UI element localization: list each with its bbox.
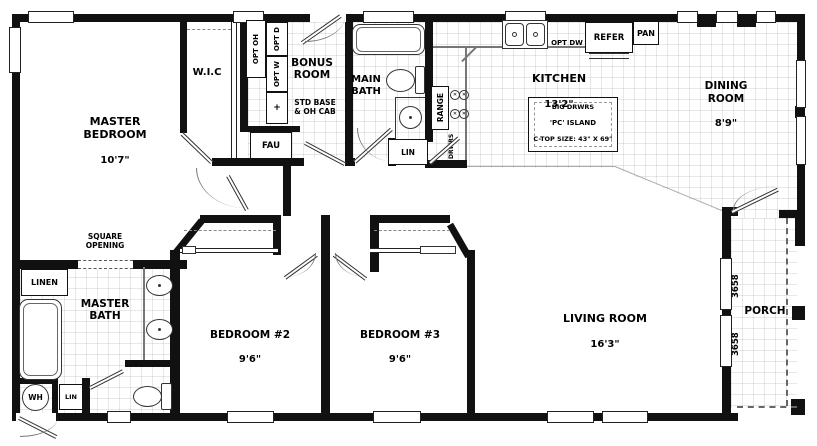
- label-living-room: LIVING ROOM 16'3": [550, 300, 660, 364]
- refrigerator-base: [589, 53, 629, 59]
- masterbath-sink-2-drain: [158, 328, 161, 331]
- bed3-door-arc: [335, 253, 366, 277]
- bed3-closet-door-panel: [420, 246, 456, 254]
- label-porch: PORCH: [740, 305, 790, 317]
- masterbath-tub-inner: [23, 303, 58, 376]
- bedroom-2-dim: 9'6": [200, 354, 300, 366]
- label-square-opening: SQUARE OPENING: [74, 233, 136, 251]
- opt-d-label: OPT D: [273, 27, 281, 51]
- window-dining-right-2: [796, 116, 806, 165]
- floor-plan: RANGE ✕ ✕ ✕ ✕ DRWRS OPT DW REFER PAN BIG…: [0, 0, 817, 446]
- window-dining-2: [716, 11, 738, 23]
- bed3-shelf-line: [374, 230, 450, 231]
- label-wic: W.I.C: [184, 67, 230, 79]
- base-cross-mark: +: [273, 103, 281, 113]
- wh-label: WH: [28, 393, 43, 402]
- bed2-door-arc: [285, 253, 316, 277]
- wall-living-left: [467, 250, 475, 415]
- label-dining-room: DINING ROOM 8'9": [693, 68, 759, 142]
- masterbath-toilet-tank: [161, 383, 172, 410]
- dining-window-post-1: [697, 16, 716, 27]
- label-kitchen: KITCHEN 13'2": [515, 60, 603, 124]
- opt-oh-label: OPT OH: [252, 34, 260, 64]
- label-master-bath: MASTER BATH: [72, 298, 138, 323]
- lin-hall-label: LIN: [401, 148, 415, 157]
- linen-closet: LINEN: [21, 269, 68, 296]
- burner-icon-4: ✕: [459, 109, 469, 119]
- wall-masterbath-top-left: [12, 260, 78, 269]
- bed2-closet-door-panel: [182, 246, 196, 254]
- porch-post-top: [795, 218, 805, 246]
- wall-lin-utility-right: [82, 378, 90, 415]
- window-master-bedroom-left: [9, 27, 21, 73]
- window-dining-3: [756, 11, 776, 23]
- window-dining-right-1: [796, 60, 806, 108]
- wall-bed-divider: [321, 215, 330, 415]
- masterbath-counter-line: [143, 267, 145, 360]
- master-bedroom-name: MASTER BEDROOM: [55, 116, 175, 142]
- bedroom-2-name: BEDROOM #2: [200, 329, 300, 341]
- label-bedroom-2: BEDROOM #2 9'6": [200, 317, 300, 378]
- window-living-bottom-1: [547, 411, 594, 423]
- wic-shelf-line: [187, 29, 231, 30]
- pan-label: PAN: [637, 29, 655, 38]
- range-label: RANGE: [436, 93, 445, 122]
- masterbath-sink-1-drain: [158, 284, 161, 287]
- range-cabinet: RANGE: [431, 86, 449, 130]
- sink-drain-left: [512, 32, 517, 37]
- dining-window-post-2: [737, 16, 756, 27]
- std-base-cabinet: +: [266, 92, 288, 124]
- window-masterbath-bottom: [107, 411, 131, 423]
- pantry-cabinet: PAN: [633, 21, 659, 45]
- wall-bed3-closet-left: [370, 215, 379, 272]
- wall-hall-vertical: [283, 166, 291, 216]
- linen-label: LINEN: [31, 278, 58, 287]
- living-room-dim: 16'3": [550, 339, 660, 351]
- window-living-bottom-2: [602, 411, 648, 423]
- window-master-bedroom-top: [28, 11, 74, 23]
- utility-lin-closet: LIN: [59, 384, 83, 410]
- wall-wh-right: [52, 378, 58, 415]
- label-bonus-room: BONUS ROOM: [280, 57, 344, 82]
- wall-right-upper: [797, 14, 805, 62]
- kitchen-dim: 13'2": [515, 99, 603, 111]
- window-size-label-2: 3658: [731, 322, 746, 366]
- opt-dw-label: OPT DW: [548, 39, 586, 47]
- window-bed3-bottom: [373, 411, 421, 423]
- masterbath-toilet-bowl: [133, 386, 162, 407]
- hall-door-arc: [196, 168, 246, 208]
- square-opening-gap: [78, 260, 133, 269]
- main-bath-tub-inner: [356, 27, 421, 52]
- island-ctop-size: C-TOP SIZE: 43" X 69": [528, 136, 618, 144]
- window-main-bath: [363, 11, 414, 23]
- wic-door-leaf: [181, 133, 213, 164]
- wall-toilet-alcove: [125, 360, 170, 367]
- opt-d-cabinet: OPT D: [266, 22, 288, 56]
- label-bedroom-3: BEDROOM #3 9'6": [350, 317, 450, 378]
- porch-post-mid: [792, 306, 805, 320]
- fau-label: FAU: [262, 141, 280, 151]
- main-bath-sink-drain: [409, 116, 412, 119]
- dining-dim: 8'9": [693, 118, 759, 130]
- hall-linen-closet: LIN: [388, 139, 428, 165]
- wall-bed2-closet-top: [200, 215, 273, 223]
- burner-icon-2: ✕: [459, 90, 469, 100]
- bedroom-3-name: BEDROOM #3: [350, 329, 450, 341]
- refrigerator: REFER: [585, 22, 633, 53]
- dining-name: DINING ROOM: [693, 80, 759, 105]
- main-bath-toilet-tank: [415, 66, 425, 94]
- lin-utility-label: LIN: [65, 393, 77, 401]
- opt-oh-cabinet: OPT OH: [246, 20, 266, 78]
- label-master-bedroom: MASTER BEDROOM 10'7": [55, 103, 175, 180]
- master-bedroom-dim: 10'7": [55, 155, 175, 167]
- wall-porch-top: [779, 210, 805, 218]
- kitchen-name: KITCHEN: [515, 73, 603, 86]
- floor-edge-line: [467, 166, 615, 167]
- refer-label: REFER: [594, 33, 625, 43]
- bedroom-3-dim: 9'6": [350, 354, 450, 366]
- porch-screen-bottom: [737, 406, 797, 408]
- living-room-name: LIVING ROOM: [550, 313, 660, 326]
- window-size-label-1: 3658: [731, 264, 746, 308]
- water-heater: WH: [22, 384, 49, 411]
- window-bed2-bottom: [227, 411, 274, 423]
- wall-living-porch: [722, 207, 731, 415]
- wall-hall-horizontal: [212, 158, 304, 166]
- fau-closet: FAU: [250, 132, 292, 159]
- bed2-shelf-line: [184, 230, 276, 231]
- window-dining-1: [677, 11, 698, 23]
- std-base-note: STD BASE & OH CAB: [286, 99, 344, 117]
- wall-bed3-closet-top: [379, 215, 450, 223]
- wic-closet-front: [231, 22, 237, 158]
- sink-drain-right: [533, 32, 538, 37]
- label-main-bath: MAIN BATH: [340, 74, 392, 98]
